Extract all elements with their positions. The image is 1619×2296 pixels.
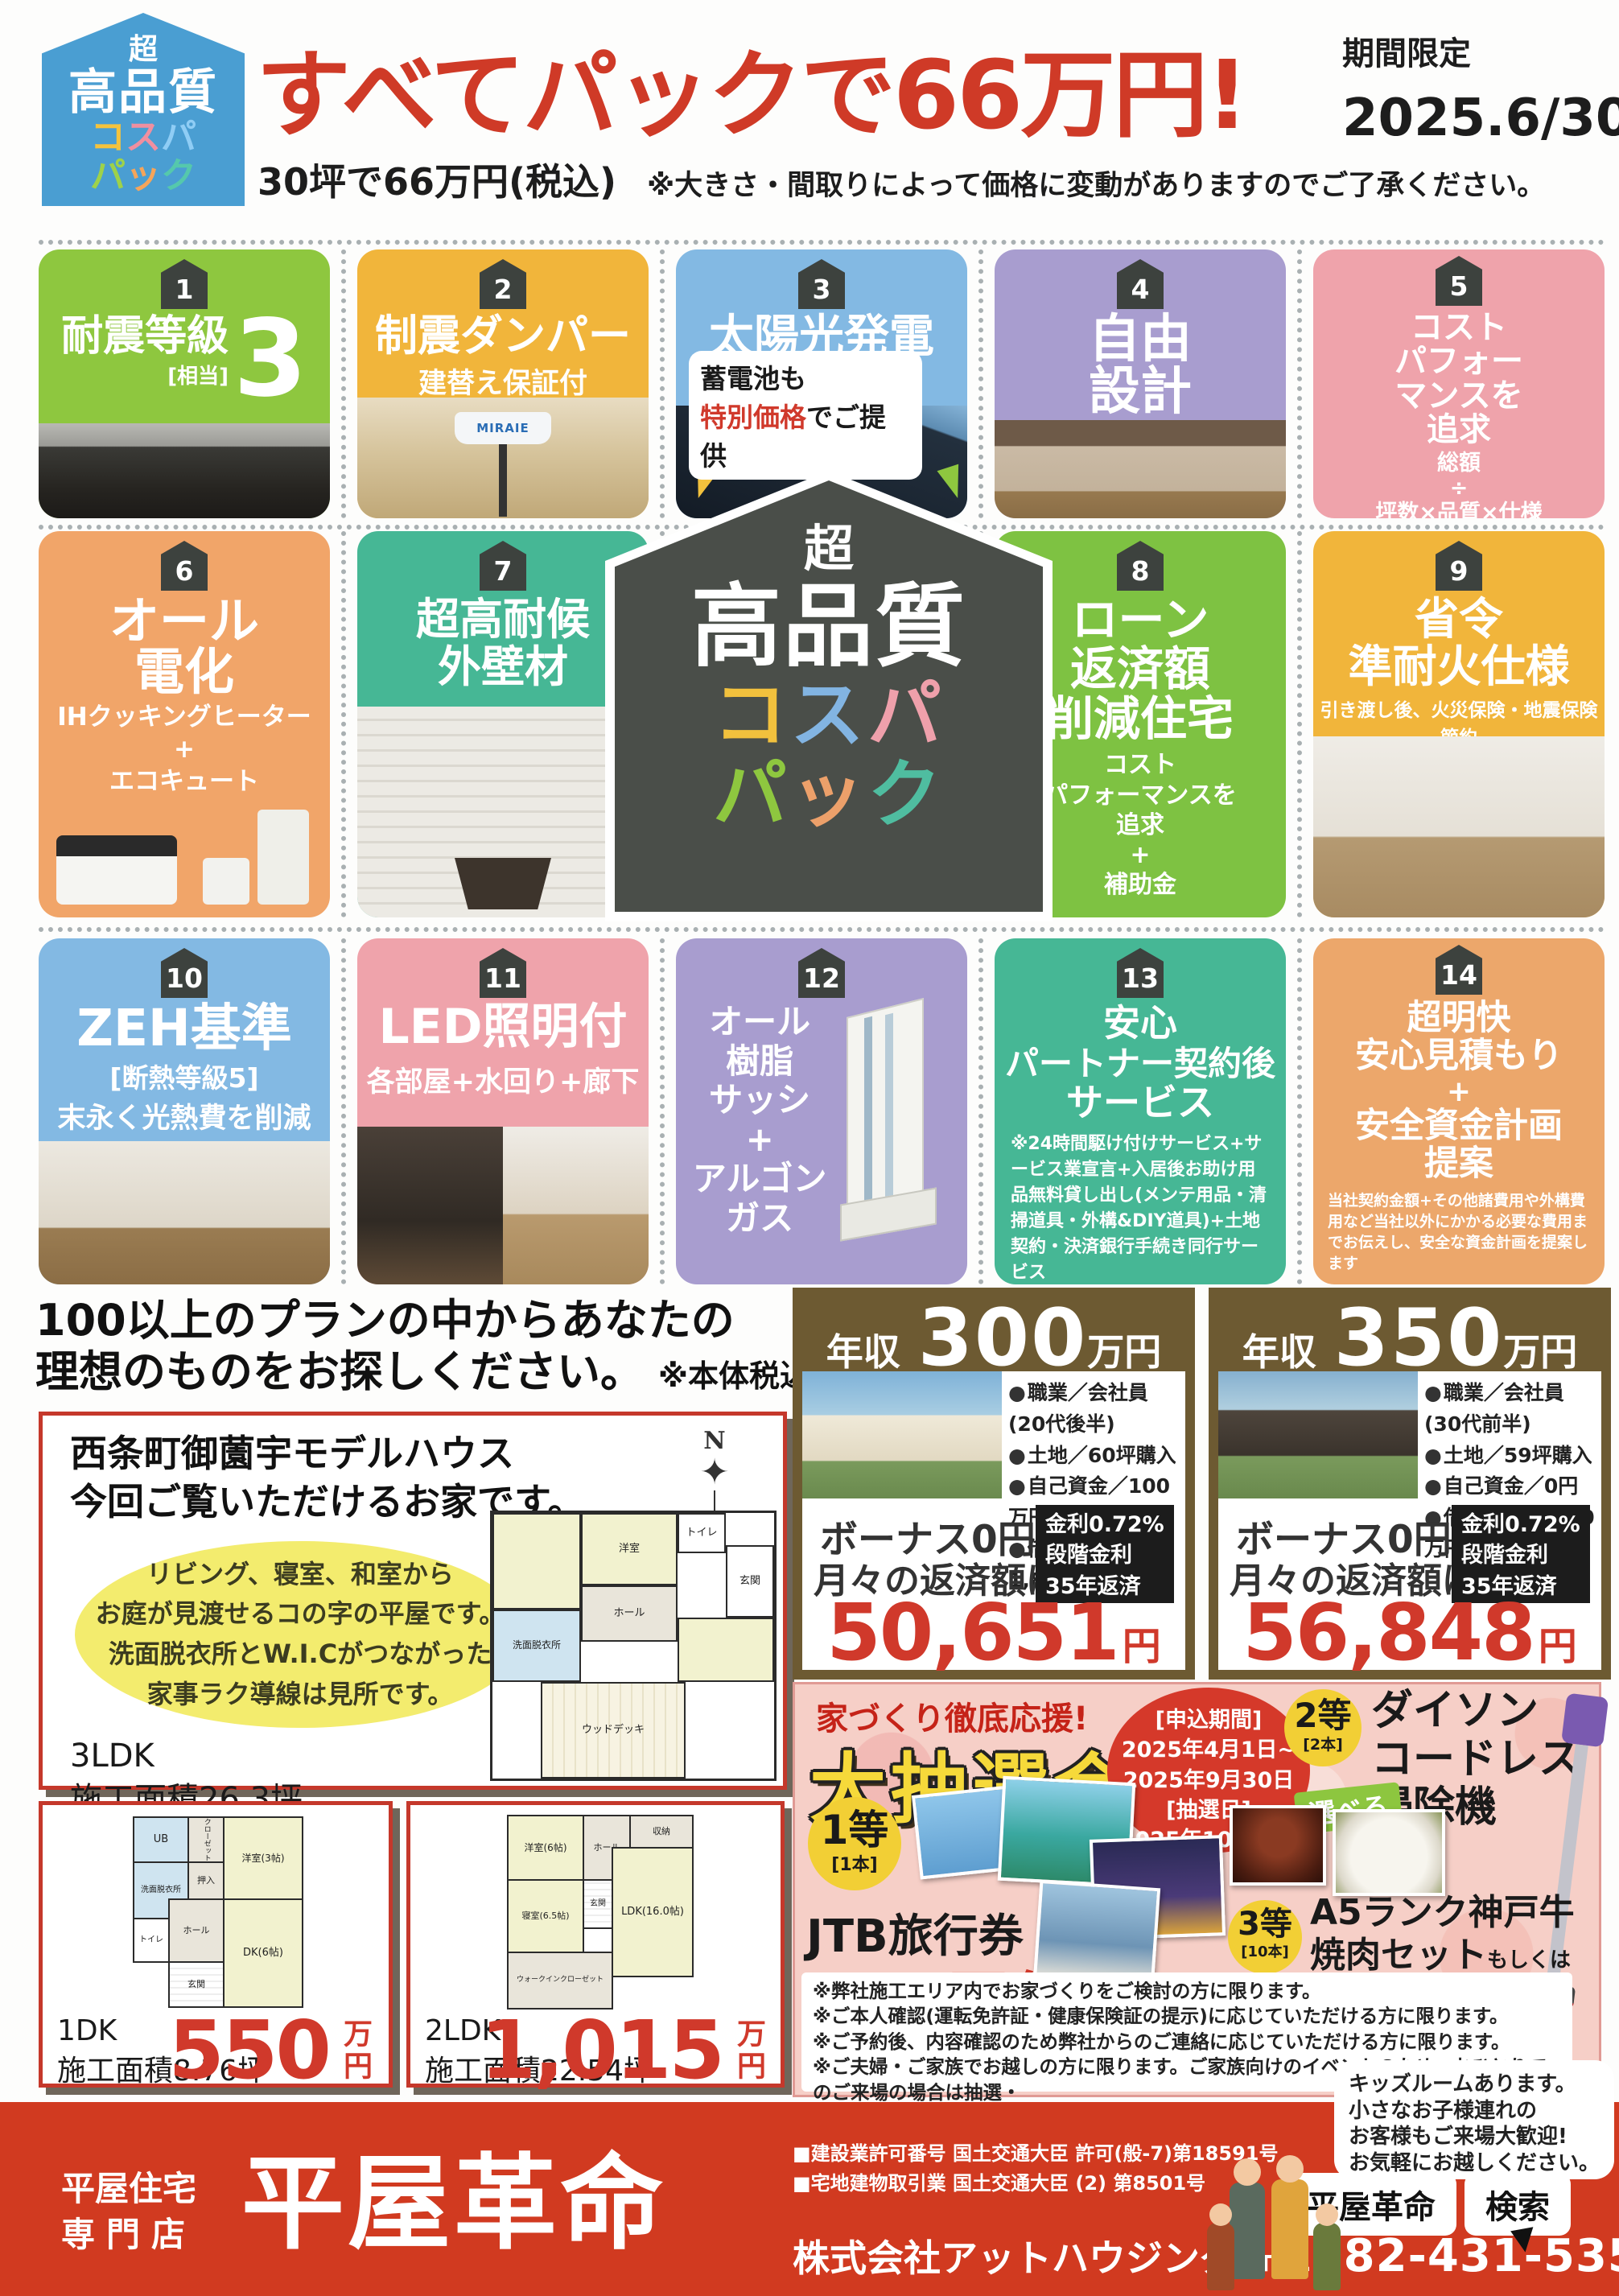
feature-11-number-icon: 11 [480,948,526,998]
dotted-divider [341,249,346,518]
first-prize-badge: 1等 [1本] [808,1797,901,1890]
dotted-divider [978,249,983,518]
battery-offer-pill: 蓄電池も 特別価格でご提供 [689,351,922,480]
feature-card-5: 5 コスト パフォー マンスを 追求 総額 ÷ 坪数×品質×仕様 [1313,249,1605,518]
feature-card-12: 12 オール 樹脂 サッシ + アルゴン ガス [676,938,967,1284]
feature-card-9: 9 省令 準耐火仕様 引き渡し後、火災保険・地震保険節約 [1313,531,1605,917]
dotted-divider [1297,938,1302,1284]
subtitle-row: 30坪で66万円(税込) ※大きさ・間取りによって価格に変動がありますのでご了承… [257,153,1545,206]
ecocute-tank-image [257,810,309,905]
feature-10-title: ZEH基準 [39,1003,330,1053]
feature-11-title: LED照明付 [357,1003,649,1051]
cospa-pack-badge: 超 高品質 コスパ パック [42,13,245,206]
feature-3-number-icon: 3 [798,259,845,309]
compass-north-icon: N ✦ [686,1427,743,1511]
feature-card-1: 1 耐震等級 [相当] 3 [39,249,330,518]
shop-type-label: 平屋住宅 専門店 [61,2166,196,2257]
ih-cooker-image [56,835,177,905]
feature-6-number-icon: 6 [161,541,208,591]
feature-card-6: 6 オール 電化 IHクッキングヒーター + エコキュート [39,531,330,917]
feature-card-13: 13 安心 パートナー契約後 サービス ※24時間駆け付けサービス+サービス業宣… [995,938,1286,1284]
feature-card-11: 11 LED照明付 各部屋+水回り+廊下 [357,938,649,1284]
income-350-header: 年収 350 万円 [1209,1288,1611,1384]
plan-1dk-price: 550 万円 [168,2003,376,2097]
kids-room-bubble: キッズルームあります。 小さなお子様連れの お客様もご来場大歓迎! お気軽にお越… [1334,2060,1614,2179]
feature-12-body: オール 樹脂 サッシ + アルゴン ガス [676,1003,967,1238]
logo-kosupa: コスパ [615,675,1043,755]
income-350-payment: 56,848 円 [1218,1587,1601,1678]
feature-2-number-icon: 2 [480,259,526,309]
limited-date-row: 2025.6/30 月 まで [1342,79,1619,158]
dining-interior-photo [995,420,1286,518]
feature-6-sub: IHクッキングヒーター + エコキュート [39,702,330,798]
feature-4-number-icon: 4 [1117,259,1164,309]
feature-5-formula: 総額 ÷ 坪数×品質×仕様 [1313,451,1605,518]
heatpump-unit-image [203,858,249,905]
dotted-divider [1297,531,1302,917]
logo-pack: パック [615,755,1043,835]
dotted-divider [39,240,1605,245]
plan-card-1dk: UB クローゼット 洋室(3帖) 洗面脱衣所 押入 トイレ ホール DK(6帖)… [39,1801,393,2088]
badge-quality: 高品質 [42,68,245,118]
feature-1-number-icon: 1 [161,259,208,309]
income-card-350: 年収 350 万円 ●職業／会社員(30代前半) ●土地／59坪購入 ●自己資金… [1209,1288,1611,1680]
mirai-damper-label: MIRAIE [455,412,551,444]
feature-13-note: ※24時間駆け付けサービス+サービス業宣言+入居後お助け用品無料貸し出し(メンテ… [995,1123,1286,1284]
income-300-header: 年収 300 万円 [793,1288,1195,1384]
logo-quality: 高品質 [615,580,1043,675]
zeh-interior-photo [39,1141,330,1284]
subtitle-note: ※大きさ・間取りによって価格に変動がありますのでご了承ください。 [647,163,1545,204]
dark-flat-house-photo [1218,1371,1418,1498]
feature-14-note: 当社契約金額+その他諸費用や外構費用など当社以外にかかる必要な費用までお伝えし、… [1313,1184,1605,1275]
income-300-payment: 50,651 円 [802,1587,1185,1678]
company-name: 株式会社アットハウジング [793,2229,1237,2282]
all-electric-photo [39,813,330,917]
feature-13-number-icon: 13 [1117,948,1164,998]
feature-1-big-3: 3 [233,314,307,404]
feature-7-number-icon: 7 [480,541,526,591]
dotted-divider [341,531,346,917]
feature-13-title: 安心 パートナー契約後 サービス [995,1003,1286,1123]
feature-8-number-icon: 8 [1117,541,1164,591]
white-flat-house-photo [802,1371,1002,1498]
feature-9-number-icon: 9 [1436,541,1482,591]
damper-photo: MIRAIE [357,398,649,518]
limited-date: 2025.6/30 [1342,89,1619,148]
yakiniku-photo [1230,1805,1326,1886]
badge-cho: 超 [42,26,245,68]
second-prize-badge: 2等 [2本] [1284,1689,1362,1766]
feature-10-number-icon: 10 [161,948,208,998]
feature-9-title: 省令 準耐火仕様 [1313,596,1605,691]
logo-cho: 超 [615,508,1043,580]
feature-card-10: 10 ZEH基準 [断熱等級5] 末永く光熱費を削減 [39,938,330,1284]
feature-card-7: 7 超高耐候 外壁材 [357,531,649,917]
led-kitchen-photo [503,1127,649,1284]
feature-card-4: 4 自由 設計 [995,249,1286,518]
dotted-divider [1297,249,1302,518]
feature-5-number-icon: 5 [1436,256,1482,306]
dotted-divider [660,938,665,1284]
company-row: 株式会社アットハウジング TEL. 082-431-5355 [793,2229,1619,2282]
stone-wall-photo [357,707,649,917]
brand-name: 平屋革命 [241,2120,666,2269]
model-house-bubble: リビング、寝室、和室から お庭が見渡せるコの字の平屋です。 洗面脱衣所とW.I.… [75,1541,525,1728]
feature-card-2: 2 制震ダンパー 建替え保証付 MIRAIE [357,249,649,518]
feature-7-title: 超高耐候 外壁材 [357,596,649,691]
lottery-section: 家づくり徹底応援! 大抽選会! [申込期間] 2025年4月1日~ 2025年9… [793,1682,1601,2097]
license-numbers: ■建設業許可番号 国土交通大臣 許可(般-7)第18591号 ■宅地建物取引業 … [793,2139,1278,2199]
living-interior-photo [1313,736,1605,917]
resin-window-image [832,1003,956,1238]
main-title: すべてパックで66万円! [256,18,1246,155]
dotted-divider [39,927,1605,932]
stool-silhouette [455,858,551,909]
limited-label: 期間限定 [1342,27,1619,74]
plan-2ldk-price: 1,015 万円 [480,2003,769,2097]
feature-10-sub2: 末永く光熱費を削減 [39,1095,330,1136]
limited-period: 期間限定 2025.6/30 月 まで [1342,27,1619,158]
tel-number: 082-431-5355 [1312,2230,1619,2282]
model-house-box: 西条町御薗宇モデルハウス 今回ご覧いただけるお家です。 N ✦ リビング、寝室、… [39,1412,787,1790]
feature-14-title: 超明快 安心見積もり + 安全資金計画 提案 [1313,1000,1605,1184]
koshihikari-rice-photo [1333,1809,1445,1896]
badge-pack: パック [42,157,245,196]
dotted-divider [978,938,983,1284]
feature-10-sub1: [断熱等級5] [39,1057,330,1095]
plan-2ldk-drawing: 洋室(6帖) ホール 収納 LDK(16.0帖) 玄関 寝室(6.5帖) ウォー… [507,1815,694,2010]
feature-2-title: 制震ダンパー [357,314,649,359]
third-prize-badge: 3等 [10本] [1228,1900,1302,1974]
led-dining-photo [357,1127,503,1284]
plan-1dk-drawing: UB クローゼット 洋室(3帖) 洗面脱衣所 押入 トイレ ホール DK(6帖)… [133,1816,303,2008]
dotted-divider [341,938,346,1284]
feature-6-title: オール 電化 [39,596,330,697]
damper-rod [499,444,507,517]
model-floor-plan: 洋室 トイレ 玄関 ホール 洗面脱衣所 ウッドデッキ [490,1511,777,1781]
feature-4-title: 自由 設計 [995,314,1286,419]
feature-card-3: 3 太陽光発電 6.525kW 蓄電池も 特別価格でご提供 [676,249,967,518]
subtitle-price: 30坪で66万円(税込) [257,153,616,206]
black-house-photo [39,423,330,518]
led-rooms-photo [357,1127,649,1284]
feature-5-title: コスト パフォー マンスを 追求 [1313,311,1605,447]
feature-12-number-icon: 12 [798,948,845,998]
feature-card-14: 14 超明快 安心見積もり + 安全資金計画 提案 当社契約金額+その他諸費用や… [1313,938,1605,1284]
feature-14-number-icon: 14 [1436,945,1482,995]
dotted-divider [660,249,665,518]
cospa-pack-center-logo: 超 高品質 コスパ パック [615,480,1043,912]
flyer-page: 超 高品質 コスパ パック すべてパックで66万円! 期間限定 2025.6/3… [0,0,1619,2296]
plan-card-2ldk: 洋室(6帖) ホール 収納 LDK(16.0帖) 玄関 寝室(6.5帖) ウォー… [406,1801,785,2088]
feature-11-sub: 各部屋+水回り+廊下 [357,1059,649,1100]
feature-2-sub: 建替え保証付 [357,361,649,402]
badge-kosupa: コスパ [42,118,245,157]
feature-12-title: オール 樹脂 サッシ + アルゴン ガス [687,1003,832,1238]
feature-1-title: 耐震等級 [相当] 3 [39,314,330,404]
income-card-300: 年収 300 万円 ●職業／会社員(20代後半) ●土地／60坪購入 ●自己資金… [793,1288,1195,1680]
